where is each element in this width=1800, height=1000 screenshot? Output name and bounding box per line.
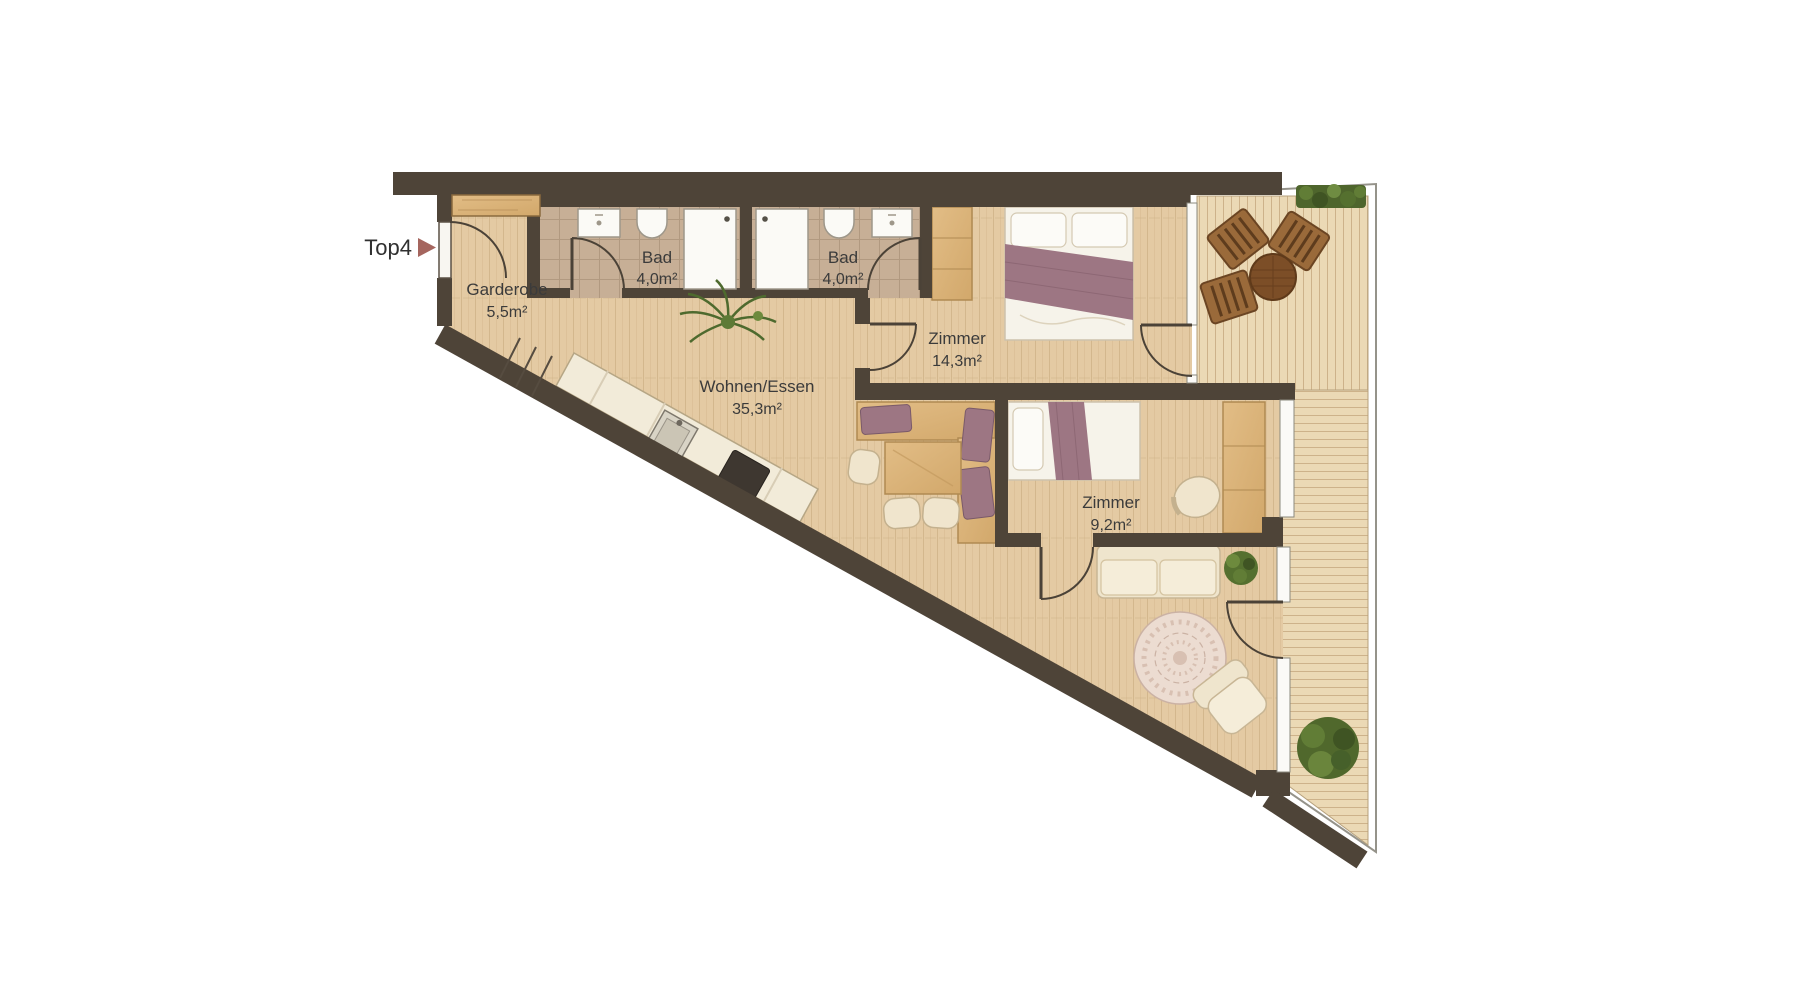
label-wohnen-essen: Wohnen/Essen xyxy=(700,377,815,396)
dining-chair xyxy=(847,448,881,486)
label-zimmer-1: Zimmer xyxy=(928,329,986,348)
floor-plan-page: Garderobe 5,5m² Bad 4,0m² Bad 4,0m² Zimm… xyxy=(0,0,1800,1000)
area-wohnen-essen: 35,3m² xyxy=(732,401,782,418)
bench-cushion xyxy=(860,404,912,434)
pillow xyxy=(1013,408,1043,470)
window-room-terrace xyxy=(1280,400,1294,517)
toilet xyxy=(637,209,667,238)
pillow xyxy=(1072,213,1127,247)
double-bed xyxy=(1005,207,1133,340)
dining-chair xyxy=(883,496,921,529)
window-living-terrace xyxy=(1277,547,1290,602)
sofa xyxy=(1097,545,1220,598)
pillow xyxy=(1011,213,1066,247)
label-garderobe: Garderobe xyxy=(466,280,547,299)
wardrobe xyxy=(932,207,972,300)
window-living-terrace xyxy=(1277,658,1290,772)
window-bedroom-terrace xyxy=(1187,203,1197,325)
desk xyxy=(1223,402,1265,533)
bench-cushion xyxy=(960,408,994,463)
label-bad-1: Bad xyxy=(642,248,672,267)
area-garderobe: 5,5m² xyxy=(487,304,529,321)
terrace-table xyxy=(1250,254,1296,300)
shower xyxy=(684,209,736,289)
terrace-plant xyxy=(1297,717,1359,779)
toilet xyxy=(824,209,854,238)
entry-wardrobe xyxy=(452,195,540,216)
label-zimmer-2: Zimmer xyxy=(1082,493,1140,512)
area-bad-1: 4,0m² xyxy=(637,271,679,288)
unit-label: Top4 xyxy=(364,235,412,260)
area-bad-2: 4,0m² xyxy=(823,271,865,288)
label-bad-2: Bad xyxy=(828,248,858,267)
sink xyxy=(578,209,620,237)
area-zimmer-2: 9,2m² xyxy=(1091,517,1133,534)
hedge-planter xyxy=(1296,184,1366,208)
floor-plan: Garderobe 5,5m² Bad 4,0m² Bad 4,0m² Zimm… xyxy=(0,0,1800,1000)
unit-arrow-icon xyxy=(418,238,436,257)
sink xyxy=(872,209,912,237)
dining-chair xyxy=(922,497,960,529)
unit-marker: Top4 xyxy=(364,235,436,260)
area-zimmer-1: 14,3m² xyxy=(932,353,982,370)
single-bed xyxy=(1008,402,1140,480)
bench-cushion xyxy=(958,466,995,519)
shower xyxy=(756,209,808,289)
sofa-plant xyxy=(1224,551,1258,585)
